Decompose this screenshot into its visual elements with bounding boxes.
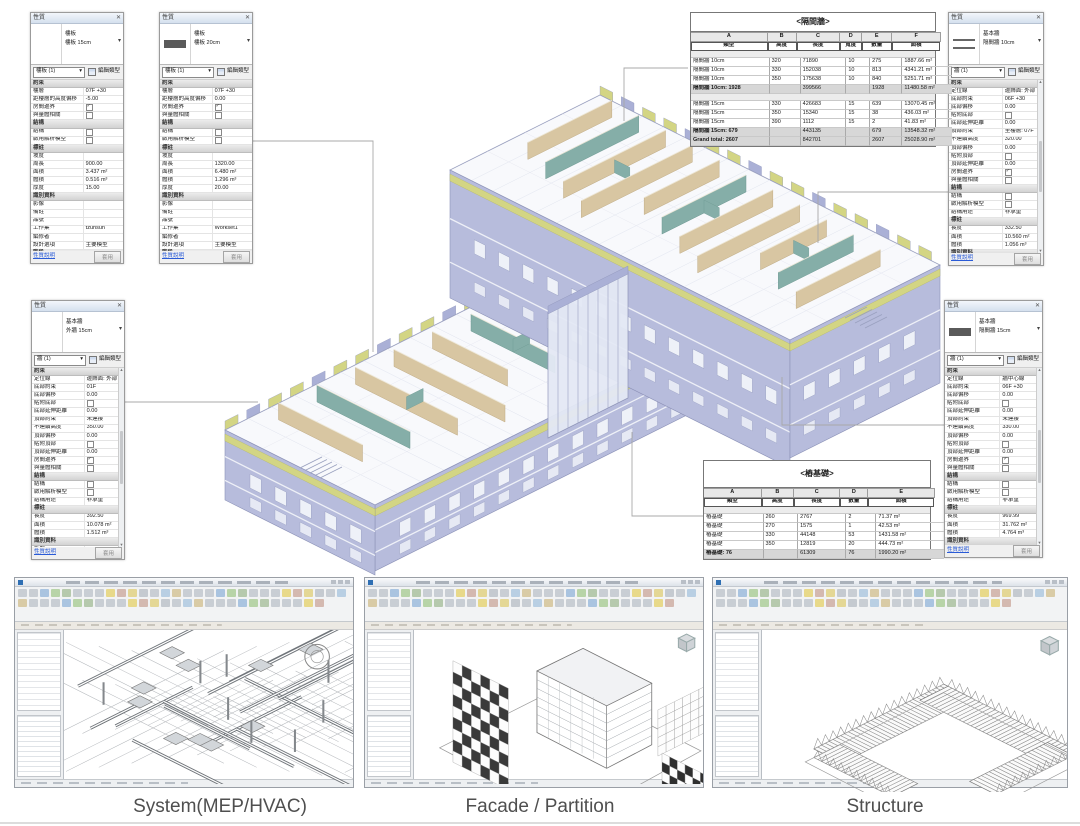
schedule-cell[interactable]: 61309 [798,550,846,559]
type-selector[interactable]: 基本牆外牆 15cm▾ [32,312,124,353]
schedule-cell[interactable]: 443135 [801,128,847,137]
property-value[interactable] [213,112,252,119]
apply-button[interactable]: 套用 [95,547,122,559]
apply-button[interactable]: 套用 [1014,253,1041,265]
schedule-partition-walls[interactable]: <隔間牆>ABCDEF類型高度長度寬度數量面積隔間牆 10cm320718901… [690,12,936,147]
schedule-cell[interactable]: 20 [846,541,876,550]
property-value[interactable]: 20.00 [213,185,252,192]
ribbon-tool-icon[interactable] [804,589,813,597]
chevron-down-icon[interactable]: ▾ [1038,38,1041,44]
ribbon-tool-icon[interactable] [991,589,1000,597]
ribbon-tool-icon[interactable] [51,599,60,607]
schedule-cell[interactable]: 350 [764,541,799,550]
property-value[interactable]: 07F +30 [213,88,252,95]
ribbon-tool-icon[interactable] [467,599,476,607]
schedule-cell[interactable] [770,85,801,94]
ribbon-tool-icon[interactable] [859,599,868,607]
checkbox[interactable] [215,104,222,111]
ribbon-tool-icon[interactable] [760,589,769,597]
property-value[interactable] [213,218,252,225]
ribbon-tool-icon[interactable] [621,589,630,597]
ribbon-tool-icon[interactable] [621,599,630,607]
ribbon-tool-icon[interactable] [925,599,934,607]
schedule-cell[interactable]: 11480.58 m² [902,85,952,94]
column-header[interactable]: 高度 [768,42,797,51]
scroll-down-icon[interactable]: ▼ [1039,249,1043,253]
ribbon-tool-icon[interactable] [947,599,956,607]
ribbon-tool-icon[interactable] [401,599,410,607]
section-header[interactable]: 約束 [160,80,252,88]
ribbon-tool-icon[interactable] [837,599,846,607]
schedule-cell[interactable]: 10 [846,76,870,85]
ribbon-tool-icon[interactable] [368,589,377,597]
ribbon-tool-icon[interactable] [304,599,313,607]
section-header[interactable]: 識別資料 [31,193,123,201]
ribbon-tool-icon[interactable] [577,599,586,607]
palette-title-bar[interactable]: 性質✕ [160,13,252,24]
column-letter[interactable]: F [892,32,941,42]
type-selector[interactable]: 基本牆隔間牆 10cm▾ [949,24,1043,65]
scrollbar-thumb[interactable] [1038,430,1041,483]
schedule-cell[interactable]: 隔間牆 15cm [691,119,770,128]
schedule-cell[interactable]: 隔間牆 15cm [691,110,770,119]
column-header[interactable]: 面積 [892,42,940,51]
ribbon-tool-icon[interactable] [599,599,608,607]
ribbon-tool-icon[interactable] [478,599,487,607]
column-letter[interactable]: A [704,488,762,498]
palette-title-bar[interactable]: 性質✕ [949,13,1043,24]
ribbon-tool-icon[interactable] [161,599,170,607]
scrollbar[interactable]: ▲▼ [118,368,124,547]
ribbon-tool-icon[interactable] [390,589,399,597]
ribbon-tool-icon[interactable] [716,589,725,597]
schedule-cell[interactable]: 樁基礎 [704,532,764,541]
section-header[interactable]: 識別資料 [32,538,124,546]
ribbon-tool-icon[interactable] [738,589,747,597]
schedule-cell[interactable]: 152038 [801,67,847,76]
ribbon-tool-icon[interactable] [892,599,901,607]
column-header[interactable]: 寬度 [840,42,862,51]
ribbon-tool-icon[interactable] [445,589,454,597]
properties-palette-partition-wall-10cm[interactable]: 性質✕基本牆隔間牆 10cm▾牆 (1)▾編輯類型約束定位線邊飾面: 外部底部約… [948,12,1044,264]
ribbon-tool-icon[interactable] [205,599,214,607]
checkbox[interactable] [1002,489,1009,496]
column-header[interactable]: 數量 [840,498,868,507]
checkbox[interactable] [87,481,94,488]
ribbon-tool-icon[interactable] [271,599,280,607]
chevron-down-icon[interactable]: ▾ [118,38,121,44]
checkbox[interactable] [215,137,222,144]
property-value[interactable] [213,137,252,144]
ribbon-tool-icon[interactable] [73,599,82,607]
palette-title-bar[interactable]: 性質✕ [32,301,124,312]
ribbon-tool-icon[interactable] [870,589,879,597]
column-header[interactable]: 高度 [762,498,795,507]
schedule-cell[interactable]: 隔間牆 10cm [691,67,770,76]
ribbon-tool-icon[interactable] [848,589,857,597]
schedule-cell[interactable] [846,85,870,94]
column-letter[interactable]: C [797,32,841,42]
property-value[interactable] [84,129,123,136]
property-value[interactable]: 0.516 m³ [84,177,123,184]
schedule-cell[interactable]: 275 [870,58,902,67]
ribbon-tool-icon[interactable] [456,589,465,597]
schedule-cell[interactable]: 390 [770,119,801,128]
column-letter[interactable]: B [762,488,795,498]
ribbon-tool-icon[interactable] [500,589,509,597]
section-header[interactable]: 標註 [32,506,124,514]
schedule-cell[interactable]: 10 [846,58,870,67]
ribbon-tool-icon[interactable] [315,589,324,597]
property-value[interactable] [213,234,252,241]
ribbon-tool-icon[interactable] [40,599,49,607]
schedule-cell[interactable]: 38 [870,110,902,119]
ribbon-tool-icon[interactable] [958,589,967,597]
ribbon-tool-icon[interactable] [1002,589,1011,597]
schedule-cell[interactable]: 樁基礎: 76 [704,550,764,559]
ribbon-tool-icon[interactable] [172,599,181,607]
scroll-down-icon[interactable]: ▼ [120,543,124,547]
schedule-cell[interactable]: 330 [770,101,801,110]
property-value[interactable] [213,210,252,217]
schedule-cell[interactable]: 樁基礎 [704,514,764,523]
drawing-canvas[interactable] [762,630,1067,779]
minimize-icon[interactable] [331,580,336,584]
project-browser-panel[interactable] [715,715,759,777]
ribbon-tool-icon[interactable] [260,599,269,607]
ribbon-tool-icon[interactable] [489,599,498,607]
ribbon-tool-icon[interactable] [172,589,181,597]
ribbon-tool-icon[interactable] [467,589,476,597]
checkbox[interactable] [1005,153,1012,160]
column-letter[interactable]: D [840,488,868,498]
property-value[interactable] [213,153,252,160]
ribbon-tool-icon[interactable] [599,589,608,597]
schedule-cell[interactable]: 隔間牆 15cm: 679 [691,128,770,137]
ribbon-tool-icon[interactable] [511,599,520,607]
ribbon-tool-icon[interactable] [282,599,291,607]
schedule-cell[interactable]: 76 [846,550,876,559]
ribbon-tool-icon[interactable] [936,599,945,607]
ribbon-tool-icon[interactable] [903,599,912,607]
section-header[interactable]: 標註 [945,506,1042,514]
ribbon-tool-icon[interactable] [522,589,531,597]
ribbon-tool-icon[interactable] [40,589,49,597]
checkbox[interactable] [1005,177,1012,184]
property-value[interactable]: 1320.00 [213,161,252,168]
revit-window-facade[interactable] [364,577,702,786]
ribbon-tool-icon[interactable] [610,589,619,597]
property-value[interactable]: tzuhsun [84,226,123,233]
ribbon-tool-icon[interactable] [84,589,93,597]
ribbon-tool-icon[interactable] [632,599,641,607]
schedule-cell[interactable]: 71.37 m² [876,514,944,523]
mini-properties-panel[interactable] [367,632,411,711]
revit-window-structure[interactable] [712,577,1066,786]
ribbon-tool-icon[interactable] [150,589,159,597]
schedule-cell[interactable]: 330 [764,532,799,541]
ribbon-tool-icon[interactable] [183,599,192,607]
schedule-cell[interactable] [770,128,801,137]
schedule-cell[interactable]: 2607 [870,137,902,146]
apply-button[interactable]: 套用 [94,251,121,263]
ribbon-tool-icon[interactable] [117,589,126,597]
checkbox[interactable] [1005,112,1012,119]
schedule-cell[interactable]: 842701 [801,137,847,146]
section-header[interactable]: 階段 [31,250,123,251]
ribbon-tool-icon[interactable] [401,589,410,597]
ribbon-tool-icon[interactable] [727,599,736,607]
ribbon-tool-icon[interactable] [826,589,835,597]
checkbox[interactable] [87,441,94,448]
ribbon-tool-icon[interactable] [1002,599,1011,607]
checkbox[interactable] [1002,400,1009,407]
ribbon-tool-icon[interactable] [456,599,465,607]
close-icon[interactable]: ✕ [117,303,122,309]
ribbon-tool-icon[interactable] [412,599,421,607]
section-header[interactable]: 約束 [945,368,1042,376]
ribbon-tool-icon[interactable] [727,589,736,597]
ribbon-tool-icon[interactable] [793,589,802,597]
ribbon-tool-icon[interactable] [826,599,835,607]
ribbon-tool-icon[interactable] [139,589,148,597]
property-value[interactable] [213,104,252,111]
schedule-cell[interactable]: 隔間牆 10cm [691,76,770,85]
checkbox[interactable] [87,489,94,496]
schedule-cell[interactable]: 41.83 m² [902,119,952,128]
ribbon-tool-icon[interactable] [445,599,454,607]
ribbon-tool-icon[interactable] [760,599,769,607]
schedule-cell[interactable]: 隔間牆 10cm: 1928 [691,85,770,94]
section-header[interactable]: 結構 [945,473,1042,481]
checkbox[interactable] [1002,441,1009,448]
ribbon-tool-icon[interactable] [914,599,923,607]
properties-help-link[interactable]: 性質說明 [162,254,184,260]
chevron-down-icon[interactable]: ▾ [247,38,250,44]
properties-palette-floor-15cm[interactable]: 性質✕樓板樓板 15cm▾樓板 (1)▾編輯類型約束樓層07F +30距樓層的高… [30,12,124,262]
schedule-cell[interactable]: 15 [846,110,870,119]
section-header[interactable]: 約束 [31,80,123,88]
ribbon-tool-icon[interactable] [749,589,758,597]
ribbon-tool-icon[interactable] [183,589,192,597]
edit-type-button[interactable]: 編輯類型 [1007,67,1041,77]
schedule-cell[interactable]: 10 [846,67,870,76]
ribbon-tool-icon[interactable] [117,599,126,607]
ribbon-tool-icon[interactable] [610,599,619,607]
schedule-cell[interactable]: 71890 [801,58,847,67]
schedule-cell[interactable]: 25028.90 m² [902,137,952,146]
properties-palette-partition-wall-15cm[interactable]: 性質✕基本牆隔間牆 15cm▾牆 (1)▾編輯類型約束定位線牆中心線底部約束06… [944,300,1043,556]
section-header[interactable]: 識別資料 [949,250,1043,253]
schedule-cell[interactable]: 330 [770,67,801,76]
ribbon-tool-icon[interactable] [194,599,203,607]
schedule-cell[interactable]: 260 [764,514,799,523]
schedule-cell[interactable]: 1990.20 m² [876,550,944,559]
schedule-cell[interactable] [846,128,870,137]
checkbox[interactable] [1005,201,1012,208]
schedule-cell[interactable]: 42.53 m² [876,523,944,532]
apply-button[interactable]: 套用 [223,251,250,263]
properties-help-link[interactable]: 性質說明 [947,548,969,554]
column-header[interactable]: 類型 [691,42,768,51]
ribbon-tool-icon[interactable] [544,589,553,597]
project-browser-panel[interactable] [17,715,61,777]
schedule-cell[interactable]: 1887.66 m² [902,58,952,67]
column-letter[interactable]: B [768,32,797,42]
properties-help-link[interactable]: 性質說明 [33,254,55,260]
close-icon[interactable]: ✕ [245,15,250,21]
maximize-icon[interactable] [338,580,343,584]
ribbon-tool-icon[interactable] [434,599,443,607]
column-header[interactable]: 類型 [704,498,762,507]
schedule-cell[interactable]: 15 [846,119,870,128]
schedule-cell[interactable]: 679 [870,128,902,137]
ribbon-tool-icon[interactable] [870,599,879,607]
ribbon-tool-icon[interactable] [837,589,846,597]
property-value[interactable] [84,201,123,208]
ribbon-tool-icon[interactable] [665,599,674,607]
ribbon-toolbar[interactable] [15,587,353,622]
checkbox[interactable] [87,400,94,407]
ribbon-tool-icon[interactable] [18,599,27,607]
schedule-cell[interactable]: 436.03 m² [902,110,952,119]
column-letter[interactable]: C [794,488,840,498]
property-value[interactable]: 1.296 m³ [213,177,252,184]
property-value[interactable]: -5.00 [84,96,123,103]
ribbon-tool-icon[interactable] [804,599,813,607]
schedule-cell[interactable]: 1431.58 m² [876,532,944,541]
schedule-cell[interactable]: 320 [770,58,801,67]
ribbon-tool-icon[interactable] [749,599,758,607]
ribbon-tool-icon[interactable] [1046,589,1055,597]
property-value[interactable]: 6.480 m² [213,169,252,176]
element-filter-select[interactable]: 牆 (1)▾ [947,355,1004,366]
ribbon-tool-icon[interactable] [848,599,857,607]
schedule-cell[interactable]: 639 [870,101,902,110]
ribbon-tool-icon[interactable] [980,589,989,597]
column-letter[interactable]: A [691,32,768,42]
property-value[interactable] [213,201,252,208]
title-bar[interactable] [713,578,1067,587]
maximize-icon[interactable] [688,580,693,584]
close-icon[interactable] [695,580,700,584]
checkbox[interactable] [86,137,93,144]
type-selector[interactable]: 基本牆隔間牆 15cm▾ [945,312,1042,353]
properties-palette-floor-20cm[interactable]: 性質✕樓板樓板 20cm▾樓板 (1)▾編輯類型約束樓層07F +30距樓層的高… [159,12,253,262]
revit-window-mep[interactable] [14,577,352,786]
schedule-cell[interactable]: 13548.32 m² [902,128,952,137]
ribbon-tool-icon[interactable] [326,589,335,597]
ribbon-tool-icon[interactable] [106,589,115,597]
checkbox[interactable] [1002,457,1009,464]
section-header[interactable]: 結構 [160,120,252,128]
ribbon-tool-icon[interactable] [205,589,214,597]
schedule-cell[interactable]: 15 [846,101,870,110]
ribbon-tool-icon[interactable] [914,589,923,597]
checkbox[interactable] [215,129,222,136]
checkbox[interactable] [1002,481,1009,488]
section-header[interactable]: 結構 [31,120,123,128]
property-value[interactable] [84,218,123,225]
ribbon-tool-icon[interactable] [566,599,575,607]
schedule-cell[interactable]: 175638 [801,76,847,85]
ribbon-tool-icon[interactable] [379,589,388,597]
column-header[interactable]: 長度 [794,498,840,507]
scrollbar[interactable]: ▲▼ [1036,368,1042,545]
schedule-cell[interactable]: Grand total: 2607 [691,137,770,146]
type-selector[interactable]: 樓板樓板 20cm▾ [160,24,252,65]
schedule-cell[interactable]: 426683 [801,101,847,110]
schedule-cell[interactable]: 1 [846,523,876,532]
ribbon-toolbar[interactable] [713,587,1067,622]
ribbon-tool-icon[interactable] [434,589,443,597]
section-header[interactable]: 結構 [32,473,124,481]
mini-properties-panel[interactable] [17,632,61,711]
palette-title-bar[interactable]: 性質✕ [945,301,1042,312]
section-header[interactable]: 約束 [949,80,1043,88]
ribbon-tool-icon[interactable] [423,589,432,597]
schedule-cell[interactable]: 270 [764,523,799,532]
schedule-cell[interactable]: 840 [870,76,902,85]
scroll-down-icon[interactable]: ▼ [1038,541,1042,545]
ribbon-tool-icon[interactable] [227,599,236,607]
ribbon-tool-icon[interactable] [771,589,780,597]
edit-type-button[interactable]: 編輯類型 [88,355,122,365]
schedule-cell[interactable]: 樁基礎 [704,523,764,532]
schedule-cell[interactable]: 350 [770,110,801,119]
schedule-cell[interactable]: 2767 [798,514,846,523]
ribbon-tool-icon[interactable] [969,589,978,597]
property-value[interactable] [213,129,252,136]
ribbon-tool-icon[interactable] [738,599,747,607]
schedule-cell[interactable]: 44148 [798,532,846,541]
ribbon-tool-icon[interactable] [106,599,115,607]
element-filter-select[interactable]: 樓板 (1)▾ [33,67,85,78]
column-letter[interactable]: E [868,488,935,498]
edit-type-button[interactable]: 編輯類型 [216,67,250,77]
scrollbar-thumb[interactable] [1039,141,1042,193]
ribbon-tool-icon[interactable] [771,599,780,607]
schedule-cell[interactable]: 4341.21 m² [902,67,952,76]
ribbon-tool-icon[interactable] [282,589,291,597]
column-header[interactable]: 長度 [797,42,841,51]
property-value[interactable] [84,112,123,119]
ribbon-tool-icon[interactable] [577,589,586,597]
schedule-cell[interactable] [764,550,799,559]
column-header[interactable]: 面積 [868,498,934,507]
schedule-cell[interactable] [770,137,801,146]
schedule-cell[interactable]: 樁基礎 [704,541,764,550]
property-value[interactable]: Workset1 [213,226,252,233]
schedule-pile-foundation[interactable]: <樁基礎>ABCDE類型高度長度數量面積樁基礎2602767271.37 m²樁… [703,460,931,560]
ribbon-tool-icon[interactable] [588,589,597,597]
ribbon-tool-icon[interactable] [881,599,890,607]
ribbon-tool-icon[interactable] [716,599,725,607]
element-filter-select[interactable]: 樓板 (1)▾ [162,67,214,78]
checkbox[interactable] [87,457,94,464]
schedule-cell[interactable]: 2 [846,514,876,523]
ribbon-tool-icon[interactable] [29,599,38,607]
ribbon-tool-icon[interactable] [216,599,225,607]
ribbon-toolbar[interactable] [365,587,703,622]
section-header[interactable]: 階段 [160,250,252,251]
checkbox[interactable] [1002,465,1009,472]
ribbon-tool-icon[interactable] [194,589,203,597]
schedule-cell[interactable]: 350 [770,76,801,85]
ribbon-tool-icon[interactable] [969,599,978,607]
maximize-icon[interactable] [1052,580,1057,584]
schedule-cell[interactable]: 隔間牆 15cm [691,101,770,110]
